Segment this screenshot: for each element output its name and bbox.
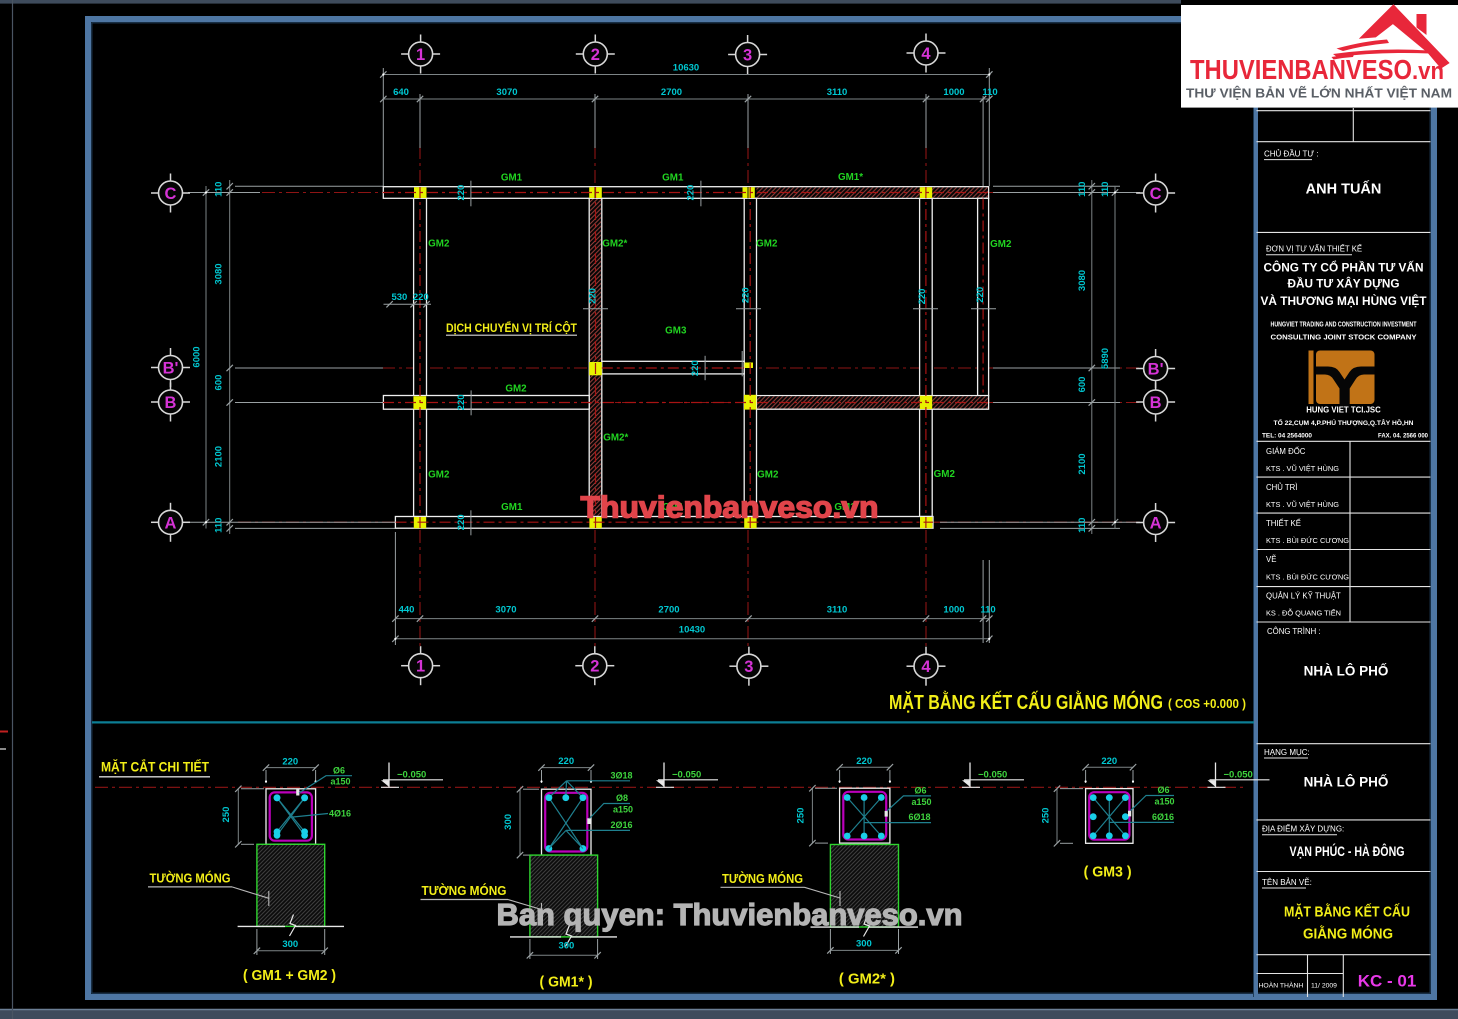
- svg-text:CÔNG TRÌNH :: CÔNG TRÌNH :: [1267, 627, 1321, 636]
- svg-text:Thuvienbanveso.vn: Thuvienbanveso.vn: [581, 490, 879, 525]
- svg-text:GM2: GM2: [990, 239, 1012, 250]
- svg-text:KC - 01: KC - 01: [1358, 972, 1417, 991]
- svg-text:Ø6: Ø6: [333, 766, 345, 776]
- svg-text:4: 4: [921, 45, 931, 63]
- svg-text:3: 3: [744, 658, 753, 676]
- svg-text:3110: 3110: [827, 605, 848, 616]
- svg-text:110: 110: [1100, 182, 1111, 197]
- svg-text:6Ø16: 6Ø16: [1152, 812, 1174, 822]
- svg-text:TƯỜNG MÓNG: TƯỜNG MÓNG: [422, 883, 507, 898]
- svg-text:250: 250: [1040, 808, 1051, 824]
- svg-text:2Ø16: 2Ø16: [610, 820, 632, 830]
- svg-text:−0.050: −0.050: [978, 769, 1007, 780]
- svg-text:GM2: GM2: [505, 384, 527, 395]
- svg-text:3070: 3070: [495, 605, 516, 616]
- svg-text:110: 110: [214, 518, 225, 533]
- svg-text:( GM1* ): ( GM1* ): [540, 974, 593, 990]
- svg-text:300: 300: [856, 939, 872, 950]
- svg-text:3Ø18: 3Ø18: [610, 770, 632, 780]
- svg-text:220: 220: [975, 287, 986, 303]
- svg-text:−0.050: −0.050: [672, 769, 701, 780]
- svg-text:1000: 1000: [943, 605, 964, 616]
- svg-text:220: 220: [558, 756, 574, 767]
- svg-text:KTS . BÙI ĐỨC CƯƠNG: KTS . BÙI ĐỨC CƯƠNG: [1266, 536, 1349, 545]
- svg-text:MẶT CẮT CHI TIẾT: MẶT CẮT CHI TIẾT: [101, 760, 210, 775]
- svg-text:KTS . VŨ VIỆT HÙNG: KTS . VŨ VIỆT HÙNG: [1266, 464, 1339, 473]
- svg-text:110: 110: [1077, 518, 1088, 533]
- svg-text:250: 250: [796, 808, 807, 824]
- svg-text:( GM2* ): ( GM2* ): [839, 972, 895, 988]
- svg-text:( COS +0.000 ): ( COS +0.000 ): [1168, 696, 1246, 711]
- svg-text:VÀ THƯƠNG MẠI HÙNG VIỆT: VÀ THƯƠNG MẠI HÙNG VIỆT: [1261, 293, 1428, 308]
- svg-text:a150: a150: [330, 777, 350, 787]
- svg-text:THIẾT KẾ: THIẾT KẾ: [1266, 518, 1301, 528]
- svg-text:a150: a150: [613, 805, 633, 815]
- svg-text:HUNG VIET TCI.JSC: HUNG VIET TCI.JSC: [1306, 406, 1381, 415]
- svg-text:1: 1: [416, 46, 425, 64]
- svg-text:220: 220: [456, 514, 467, 530]
- svg-text:KTS . BÙI ĐỨC CƯƠNG: KTS . BÙI ĐỨC CƯƠNG: [1266, 573, 1349, 582]
- svg-text:GM3: GM3: [665, 325, 687, 336]
- svg-text:600: 600: [214, 375, 225, 391]
- svg-text:11/ 2009: 11/ 2009: [1311, 982, 1337, 989]
- svg-text:220: 220: [413, 292, 429, 303]
- svg-text:Ø6: Ø6: [1157, 785, 1169, 795]
- svg-text:GM2: GM2: [428, 238, 450, 249]
- svg-text:2100: 2100: [1077, 453, 1088, 474]
- svg-text:ANH TUẤN: ANH TUẤN: [1306, 181, 1382, 198]
- svg-text:HUNGVIET TRADING AND CONSTRUCT: HUNGVIET TRADING AND CONSTRUCTION INVEST…: [1271, 320, 1417, 329]
- svg-text:220: 220: [690, 360, 701, 376]
- svg-text:a150: a150: [911, 797, 931, 807]
- svg-text:( GM3 ): ( GM3 ): [1084, 865, 1132, 881]
- svg-text:TƯỜNG MÓNG: TƯỜNG MÓNG: [722, 871, 803, 886]
- svg-text:Ø6: Ø6: [914, 785, 926, 795]
- svg-text:GM2: GM2: [934, 469, 956, 480]
- svg-text:CÔNG TY CỔ PHẦN TƯ VẤN: CÔNG TY CỔ PHẦN TƯ VẤN: [1264, 261, 1424, 275]
- svg-text:FAX. 04. 2566 000: FAX. 04. 2566 000: [1378, 432, 1428, 439]
- svg-text:DỊCH CHUYỂN VỊ TRÍ CỘT: DỊCH CHUYỂN VỊ TRÍ CỘT: [446, 322, 577, 335]
- svg-text:6Ø18: 6Ø18: [908, 812, 930, 822]
- svg-text:B': B': [1148, 361, 1164, 379]
- svg-text:−0.050: −0.050: [397, 769, 426, 780]
- svg-text:2100: 2100: [214, 446, 225, 467]
- svg-text:4Ø16: 4Ø16: [329, 808, 351, 818]
- svg-text:QUẢN LÝ KỸ THUẬT: QUẢN LÝ KỸ THUẬT: [1266, 592, 1341, 601]
- svg-text:3070: 3070: [496, 87, 517, 98]
- svg-text:ĐỊA ĐIỂM XÂY DỰNG:: ĐỊA ĐIỂM XÂY DỰNG:: [1262, 825, 1344, 834]
- svg-text:VẼ: VẼ: [1266, 555, 1276, 564]
- svg-text:220: 220: [456, 394, 467, 410]
- svg-text:110: 110: [214, 182, 225, 197]
- svg-text:B: B: [165, 394, 177, 412]
- svg-text:220: 220: [917, 289, 928, 305]
- svg-text:220: 220: [587, 288, 598, 304]
- svg-text:220: 220: [685, 185, 696, 201]
- svg-text:5890: 5890: [1100, 348, 1111, 369]
- svg-text:10630: 10630: [673, 63, 699, 74]
- svg-text:300: 300: [282, 939, 298, 950]
- svg-text:640: 640: [393, 87, 409, 98]
- svg-text:220: 220: [856, 756, 872, 767]
- svg-text:THƯ VIỆN BẢN VẼ LỚN NHẤT VIỆT: THƯ VIỆN BẢN VẼ LỚN NHẤT VIỆT NAM: [1186, 86, 1452, 101]
- svg-text:600: 600: [1077, 377, 1088, 393]
- svg-text:220: 220: [282, 756, 298, 767]
- svg-text:TƯỜNG MÓNG: TƯỜNG MÓNG: [150, 871, 231, 886]
- svg-text:1: 1: [416, 658, 425, 676]
- svg-text:GM2*: GM2*: [603, 433, 628, 444]
- svg-text:GM1: GM1: [501, 502, 523, 513]
- svg-text:B': B': [163, 360, 179, 378]
- svg-text:TÊN BẢN VẼ:: TÊN BẢN VẼ:: [1262, 878, 1312, 887]
- svg-text:A: A: [165, 514, 177, 532]
- svg-text:NHÀ LÔ PHỐ: NHÀ LÔ PHỐ: [1304, 775, 1389, 790]
- svg-text:3: 3: [743, 47, 752, 65]
- svg-text:THUVIENBANVESO: THUVIENBANVESO: [1190, 54, 1412, 85]
- svg-text:440: 440: [399, 605, 415, 616]
- svg-text:300: 300: [558, 940, 574, 951]
- svg-text:B: B: [1150, 394, 1162, 412]
- svg-text:220: 220: [740, 287, 751, 303]
- svg-text:A: A: [1150, 515, 1162, 533]
- svg-text:ĐẦU TƯ XÂY DỰNG: ĐẦU TƯ XÂY DỰNG: [1288, 276, 1400, 290]
- svg-text:a150: a150: [1154, 797, 1174, 807]
- svg-text:KTS . VŨ VIỆT HÙNG: KTS . VŨ VIỆT HÙNG: [1266, 500, 1339, 509]
- svg-text:( GM1 + GM2 ): ( GM1 + GM2 ): [243, 968, 336, 984]
- svg-text:GM2: GM2: [428, 469, 450, 480]
- svg-text:GM1: GM1: [501, 172, 523, 183]
- svg-text:2700: 2700: [658, 605, 679, 616]
- svg-text:300: 300: [503, 814, 514, 830]
- svg-text:10430: 10430: [679, 625, 705, 636]
- svg-text:NHÀ LÔ PHỐ: NHÀ LÔ PHỐ: [1304, 664, 1389, 679]
- svg-text:220: 220: [1101, 756, 1117, 767]
- svg-text:250: 250: [221, 807, 232, 823]
- svg-text:2: 2: [591, 46, 600, 64]
- svg-text:3080: 3080: [214, 263, 225, 284]
- svg-text:GM2: GM2: [757, 469, 779, 480]
- svg-text:110: 110: [980, 605, 995, 616]
- svg-text:GM1*: GM1*: [838, 172, 863, 183]
- svg-text:Ban quyen: Thuvienbanveso.vn: Ban quyen: Thuvienbanveso.vn: [497, 898, 963, 932]
- svg-text:GM1: GM1: [662, 172, 684, 183]
- svg-text:3110: 3110: [827, 87, 848, 98]
- svg-text:GM2*: GM2*: [602, 238, 627, 249]
- svg-text:2: 2: [590, 658, 599, 676]
- svg-text:C: C: [1150, 185, 1162, 203]
- svg-text:6000: 6000: [192, 346, 203, 367]
- svg-text:CHỦ ĐẦU TƯ :: CHỦ ĐẦU TƯ :: [1264, 148, 1319, 158]
- svg-text:TEL: 04 2564000: TEL: 04 2564000: [1262, 432, 1312, 439]
- svg-text:GIÁM ĐỐC: GIÁM ĐỐC: [1266, 446, 1306, 456]
- svg-text:KS . ĐỖ QUANG TIẾN: KS . ĐỖ QUANG TIẾN: [1266, 608, 1341, 618]
- svg-text:HẠNG MỤC:: HẠNG MỤC:: [1264, 748, 1310, 757]
- svg-text:2700: 2700: [661, 87, 682, 98]
- svg-text:1000: 1000: [943, 87, 964, 98]
- svg-text:CHỦ TRÌ: CHỦ TRÌ: [1266, 483, 1297, 492]
- svg-text:GIẰNG MÓNG: GIẰNG MÓNG: [1303, 925, 1393, 943]
- svg-text:C: C: [165, 185, 177, 203]
- svg-text:110: 110: [1077, 182, 1088, 197]
- svg-text:HOÀN THÀNH: HOÀN THÀNH: [1259, 980, 1304, 989]
- svg-text:Ø8: Ø8: [616, 793, 628, 803]
- svg-text:MẶT BẰNG KẾT CẤU: MẶT BẰNG KẾT CẤU: [1284, 903, 1410, 921]
- svg-text:3080: 3080: [1077, 270, 1088, 291]
- svg-text:ĐƠN VỊ TƯ VẤN THIẾT KẾ: ĐƠN VỊ TƯ VẤN THIẾT KẾ: [1266, 244, 1362, 254]
- svg-text:.vn: .vn: [1412, 58, 1444, 85]
- svg-text:−0.050: −0.050: [1224, 769, 1253, 780]
- svg-text:MẶT BẰNG KẾT CẤU GIẰNG MÓNG: MẶT BẰNG KẾT CẤU GIẰNG MÓNG: [889, 690, 1163, 714]
- svg-text:4: 4: [921, 658, 931, 676]
- svg-text:220: 220: [456, 185, 467, 201]
- svg-text:530: 530: [391, 292, 407, 303]
- svg-text:VẠN PHÚC - HÀ ĐÔNG: VẠN PHÚC - HÀ ĐÔNG: [1290, 844, 1405, 859]
- svg-text:CONSULTING JOINT STOCK COMPANY: CONSULTING JOINT STOCK COMPANY: [1271, 333, 1417, 342]
- svg-text:GM2: GM2: [756, 238, 778, 249]
- svg-text:110: 110: [982, 87, 997, 98]
